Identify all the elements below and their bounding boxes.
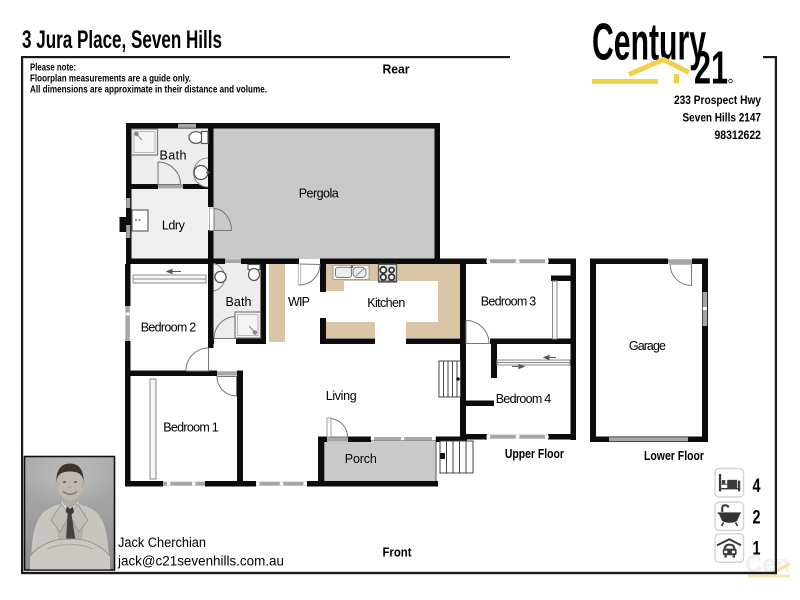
svg-text:4: 4	[753, 476, 761, 497]
svg-text:Bedroom 4: Bedroom 4	[496, 392, 552, 406]
svg-text:All dimensions are approximate: All dimensions are approximate in their …	[30, 84, 267, 96]
svg-text:Living: Living	[326, 389, 357, 403]
svg-text:WIP: WIP	[288, 295, 310, 309]
svg-text:Garage: Garage	[629, 339, 666, 353]
svg-text:98312622: 98312622	[715, 130, 762, 142]
svg-text:Seven Hills 2147: Seven Hills 2147	[683, 113, 762, 125]
svg-text:jack@c21sevenhills.com.au: jack@c21sevenhills.com.au	[117, 554, 284, 569]
svg-text:Upper Floor: Upper Floor	[505, 446, 564, 461]
svg-text:Pergola: Pergola	[299, 187, 339, 201]
svg-text:Porch: Porch	[345, 452, 377, 466]
svg-text:Century: Century	[592, 14, 706, 72]
svg-text:Bath: Bath	[160, 149, 187, 163]
svg-text:21: 21	[694, 42, 728, 94]
svg-text:Bedroom 2: Bedroom 2	[141, 321, 197, 335]
svg-text:Bath: Bath	[226, 295, 252, 309]
svg-text:Jack Cherchian: Jack Cherchian	[118, 535, 206, 550]
svg-text:Bedroom 3: Bedroom 3	[481, 295, 537, 309]
svg-text:Rear: Rear	[383, 63, 410, 77]
svg-text:2: 2	[753, 508, 761, 529]
svg-text:Front: Front	[383, 546, 413, 560]
svg-text:Ldry: Ldry	[162, 219, 186, 233]
svg-text:3 Jura Place, Seven Hills: 3 Jura Place, Seven Hills	[22, 26, 222, 54]
svg-text:Bedroom 1: Bedroom 1	[163, 421, 219, 435]
svg-text:1: 1	[753, 539, 761, 560]
svg-text:Lower Floor: Lower Floor	[644, 448, 704, 463]
svg-text:Kitchen: Kitchen	[367, 296, 405, 310]
svg-text:233 Prospect Hwy: 233 Prospect Hwy	[674, 95, 762, 107]
